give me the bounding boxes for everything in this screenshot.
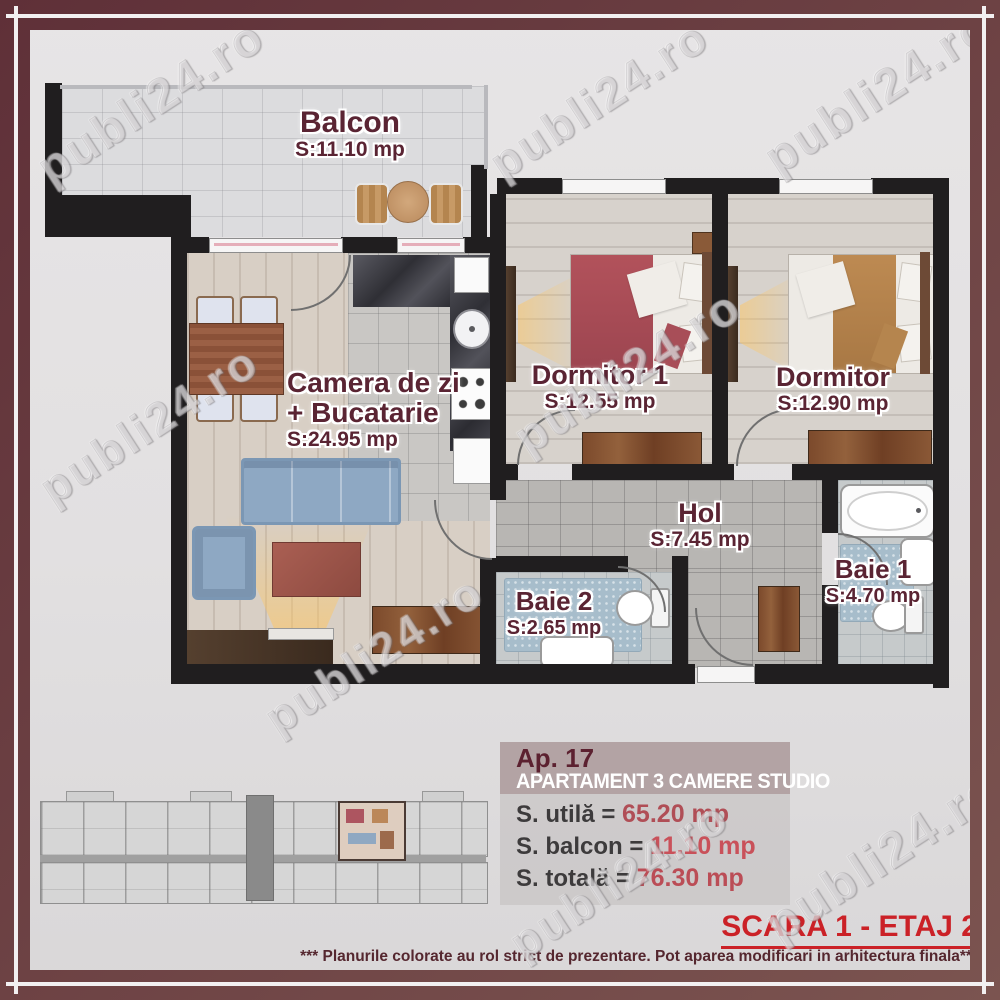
room-name: Dormitor 1 <box>515 360 685 390</box>
entry-door-threshold <box>697 666 755 683</box>
mini-room <box>348 833 376 844</box>
disclaimer-text: *** Planurile colorate au rol strict de … <box>300 948 978 966</box>
building-strip <box>40 785 490 905</box>
mini-room <box>380 831 394 849</box>
wall <box>497 178 562 194</box>
balcony-chair <box>355 183 389 225</box>
room-name: Camera de zi <box>287 368 497 398</box>
room-area: S:24.95 mp <box>287 428 497 452</box>
bathtub <box>840 484 935 538</box>
room-label-baie1: Baie 1 S:4.70 mp <box>812 554 934 608</box>
room-area: S:2.65 mp <box>492 616 616 640</box>
wall <box>171 237 187 684</box>
room-name: + Bucatarie <box>287 398 497 428</box>
area-value: 76.30 mp <box>637 864 744 892</box>
headboard <box>920 252 930 374</box>
balcony-railing <box>60 85 472 89</box>
frame-inner-line <box>982 6 986 994</box>
room-label-balcon: Balcon S:11.10 mp <box>255 108 445 162</box>
frame-inner-line <box>6 982 994 986</box>
room-name: Baie 2 <box>492 586 616 616</box>
balcony-chair <box>429 183 463 225</box>
area-row: S. totală = 76.30 mp <box>516 864 744 893</box>
wall <box>822 480 838 533</box>
watermark: publi24.ro <box>480 9 719 190</box>
apartment-info-panel: Ap. 17 APARTAMENT 3 CAMERE STUDIO S. uti… <box>500 742 790 905</box>
armchair <box>192 526 256 600</box>
balcony-railing <box>484 85 488 169</box>
fridge <box>454 257 489 293</box>
room-area: S:12.90 mp <box>748 392 918 416</box>
wall <box>490 194 506 500</box>
wall <box>496 556 628 572</box>
tv <box>268 628 334 640</box>
wall <box>45 195 191 237</box>
mini-highlighted-apartment <box>338 801 406 861</box>
room-area: S:11.10 mp <box>255 138 445 162</box>
wall <box>755 664 949 684</box>
room-label-baie2: Baie 2 S:2.65 mp <box>492 586 616 640</box>
mini-room <box>346 809 364 823</box>
listing-poster: Balcon S:11.10 mp Camera de zi + Bucatar… <box>0 0 1000 1000</box>
info-panel-header: Ap. 17 APARTAMENT 3 CAMERE STUDIO <box>500 742 790 794</box>
bed-dormitor1 <box>570 254 718 374</box>
area-value: 11.10 mp <box>650 832 756 860</box>
wall <box>792 464 933 480</box>
room-name: Balcon <box>255 108 445 138</box>
room-name: Dormitor <box>748 362 918 392</box>
room-area: S:4.70 mp <box>812 584 934 608</box>
wall <box>712 194 728 464</box>
window <box>562 179 666 194</box>
frame-inner-line <box>6 14 994 18</box>
balcony-window <box>209 238 343 253</box>
frame-inner-line <box>14 6 18 994</box>
mini-stair-core <box>246 795 274 901</box>
wall <box>506 464 518 480</box>
building-floor-label: SCARA 1 - ETAJ 2 <box>721 910 978 949</box>
wall <box>187 237 209 253</box>
room-label-hol: Hol S:7.45 mp <box>645 498 755 552</box>
room-name: Hol <box>645 498 755 528</box>
balcony-table <box>387 181 429 223</box>
room-area: S:7.45 mp <box>645 528 755 552</box>
kitchen-sink <box>453 309 491 349</box>
area-row: S. balcon = 11.10 mp <box>516 832 756 861</box>
apartment-title: APARTAMENT 3 CAMERE STUDIO <box>516 770 830 794</box>
balcony-door-window <box>397 238 465 253</box>
mini-room <box>372 809 388 823</box>
dining-table <box>189 323 284 395</box>
area-label: S. totală = <box>516 865 637 892</box>
living-cabinet <box>372 606 492 654</box>
sofa <box>241 458 401 525</box>
room-area: S:12.55 mp <box>515 390 685 414</box>
wall <box>341 237 397 253</box>
room-label-dormitor1: Dormitor 1 S:12.55 mp <box>515 360 685 414</box>
wall <box>933 178 949 688</box>
wall <box>664 178 779 194</box>
room-label-living: Camera de zi + Bucatarie S:24.95 mp <box>287 368 497 452</box>
bed-dormitor2 <box>788 254 935 374</box>
room-label-dormitor2: Dormitor S:12.90 mp <box>748 362 918 416</box>
wall <box>171 664 695 684</box>
area-row: S. utilă = 65.20 mp <box>516 800 729 829</box>
headboard <box>702 252 712 374</box>
wall <box>45 83 62 205</box>
coffee-table <box>272 542 361 597</box>
tv <box>728 266 738 382</box>
area-label: S. utilă = <box>516 801 622 828</box>
hallway-cabinet <box>758 586 800 652</box>
wall <box>572 464 734 480</box>
wall <box>672 556 688 668</box>
window <box>779 179 873 194</box>
area-value: 65.20 mp <box>622 800 729 828</box>
wall <box>471 165 487 239</box>
room-name: Baie 1 <box>812 554 934 584</box>
area-label: S. balcon = <box>516 833 650 860</box>
